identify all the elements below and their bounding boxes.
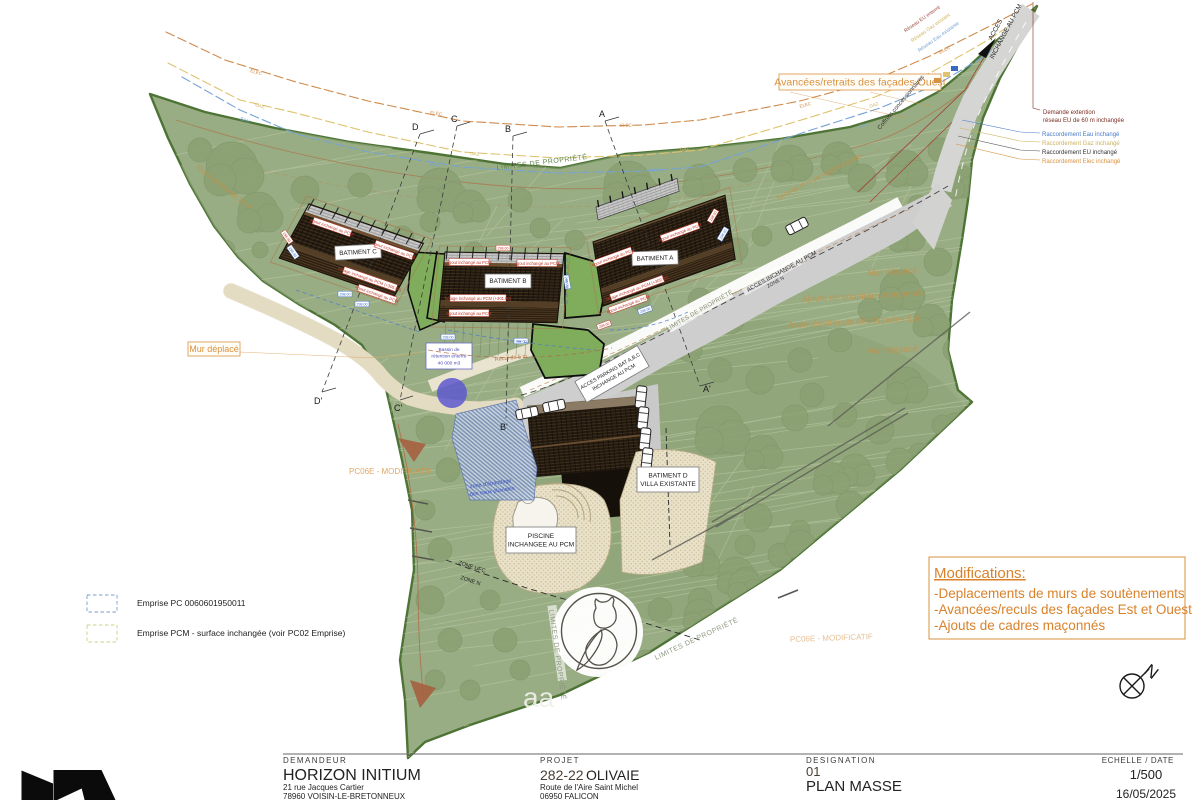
svg-text:-Deplacements de murs de soutè: -Deplacements de murs de soutènements (934, 586, 1185, 601)
svg-text:DEMANDEUR: DEMANDEUR (283, 756, 347, 765)
svg-text:Bassin de: Bassin de (438, 347, 459, 353)
svg-text:EAU: EAU (650, 167, 660, 173)
svg-text:C: C (451, 114, 458, 124)
svg-text:Route de l'Aire Saint Michel: Route de l'Aire Saint Michel (540, 783, 638, 792)
svg-text:OLIVAIE: OLIVAIE (586, 767, 639, 783)
svg-text:Raccordement Elec inchangé: Raccordement Elec inchangé (1042, 159, 1121, 165)
svg-text:Raccordement Gaz inchangé: Raccordement Gaz inchangé (1042, 141, 1120, 147)
svg-text:298.00: 298.00 (443, 336, 454, 340)
svg-text:A': A' (703, 384, 711, 394)
svg-text:Raccordement Eau inchangé: Raccordement Eau inchangé (1042, 132, 1120, 138)
svg-text:298.00: 298.00 (357, 303, 368, 307)
svg-text:D: D (412, 122, 419, 132)
svg-text:1/500: 1/500 (1130, 767, 1163, 782)
svg-text:réseau EU de 60 m inchangée: réseau EU de 60 m inchangée (1043, 118, 1125, 124)
svg-text:B': B' (500, 422, 508, 432)
svg-text:16/05/2025: 16/05/2025 (1116, 787, 1176, 800)
svg-text:faîtage inchangé au PCM (+301.: faîtage inchangé au PCM (+301.00) (445, 296, 512, 301)
svg-text:Raccordement EU inchangé: Raccordement EU inchangé (1042, 150, 1118, 156)
svg-text:VILLA EXISTANTE: VILLA EXISTANTE (640, 481, 696, 488)
svg-text:C': C' (394, 403, 402, 413)
svg-text:40 000 m3: 40 000 m3 (438, 361, 461, 367)
svg-text:298.00: 298.00 (498, 247, 509, 251)
svg-text:BATIMENT A: BATIMENT A (636, 255, 674, 263)
svg-text:Modifications:: Modifications: (934, 565, 1026, 582)
svg-text:PROJET: PROJET (540, 756, 580, 765)
svg-text:01: 01 (806, 764, 820, 779)
svg-text:78960 VOISIN-LE-BRETONNEUX: 78960 VOISIN-LE-BRETONNEUX (283, 792, 406, 800)
svg-text:egout inchangé au PCM: egout inchangé au PCM (447, 311, 492, 316)
svg-text:ECHELLE / DATE: ECHELLE / DATE (1102, 756, 1174, 765)
svg-text:BATIMENT D: BATIMENT D (648, 473, 688, 480)
svg-text:-Avancées/reculs des façades E: -Avancées/reculs des façades Est et Oues… (934, 602, 1192, 617)
svg-text:egout inchangé au PCM: egout inchangé au PCM (515, 261, 560, 266)
svg-text:21 rue Jacques Cartier: 21 rue Jacques Cartier (283, 783, 364, 792)
svg-text:GAZ: GAZ (470, 151, 480, 157)
svg-text:Mur déplacé: Mur déplacé (189, 344, 239, 354)
svg-text:ELEC: ELEC (620, 123, 633, 128)
svg-text:282-22: 282-22 (540, 767, 584, 783)
svg-text:HORIZON INITIUM: HORIZON INITIUM (283, 767, 421, 784)
svg-text:PISCINE: PISCINE (528, 533, 555, 540)
svg-text:B: B (505, 124, 511, 134)
svg-text:06950 FALICON: 06950 FALICON (540, 792, 599, 800)
svg-text:Emprise PCM - surface inchangé: Emprise PCM - surface inchangée (voir PC… (137, 628, 345, 638)
svg-text:D': D' (314, 396, 322, 406)
svg-text:GAZ: GAZ (680, 146, 690, 152)
svg-text:298.00: 298.00 (340, 293, 351, 297)
svg-text:INCHANGEE AU PCM: INCHANGEE AU PCM (508, 542, 574, 549)
svg-text:BATIMENT B: BATIMENT B (489, 278, 526, 285)
svg-text:PC06E - MODIFICATIF: PC06E - MODIFICATIF (349, 467, 432, 476)
svg-text:PLAN MASSE: PLAN MASSE (806, 778, 902, 795)
svg-text:aa: aa (523, 682, 555, 713)
svg-text:A: A (599, 109, 605, 119)
svg-text:EAU: EAU (430, 162, 440, 168)
svg-text:egout inchangé au PCM: egout inchangé au PCM (447, 260, 492, 265)
svg-text:Emprise PC 0060601950011: Emprise PC 0060601950011 (137, 598, 246, 608)
svg-text:Demande extention: Demande extention (1043, 110, 1095, 116)
svg-text:-Ajouts de cadres maçonnés: -Ajouts de cadres maçonnés (934, 618, 1105, 633)
